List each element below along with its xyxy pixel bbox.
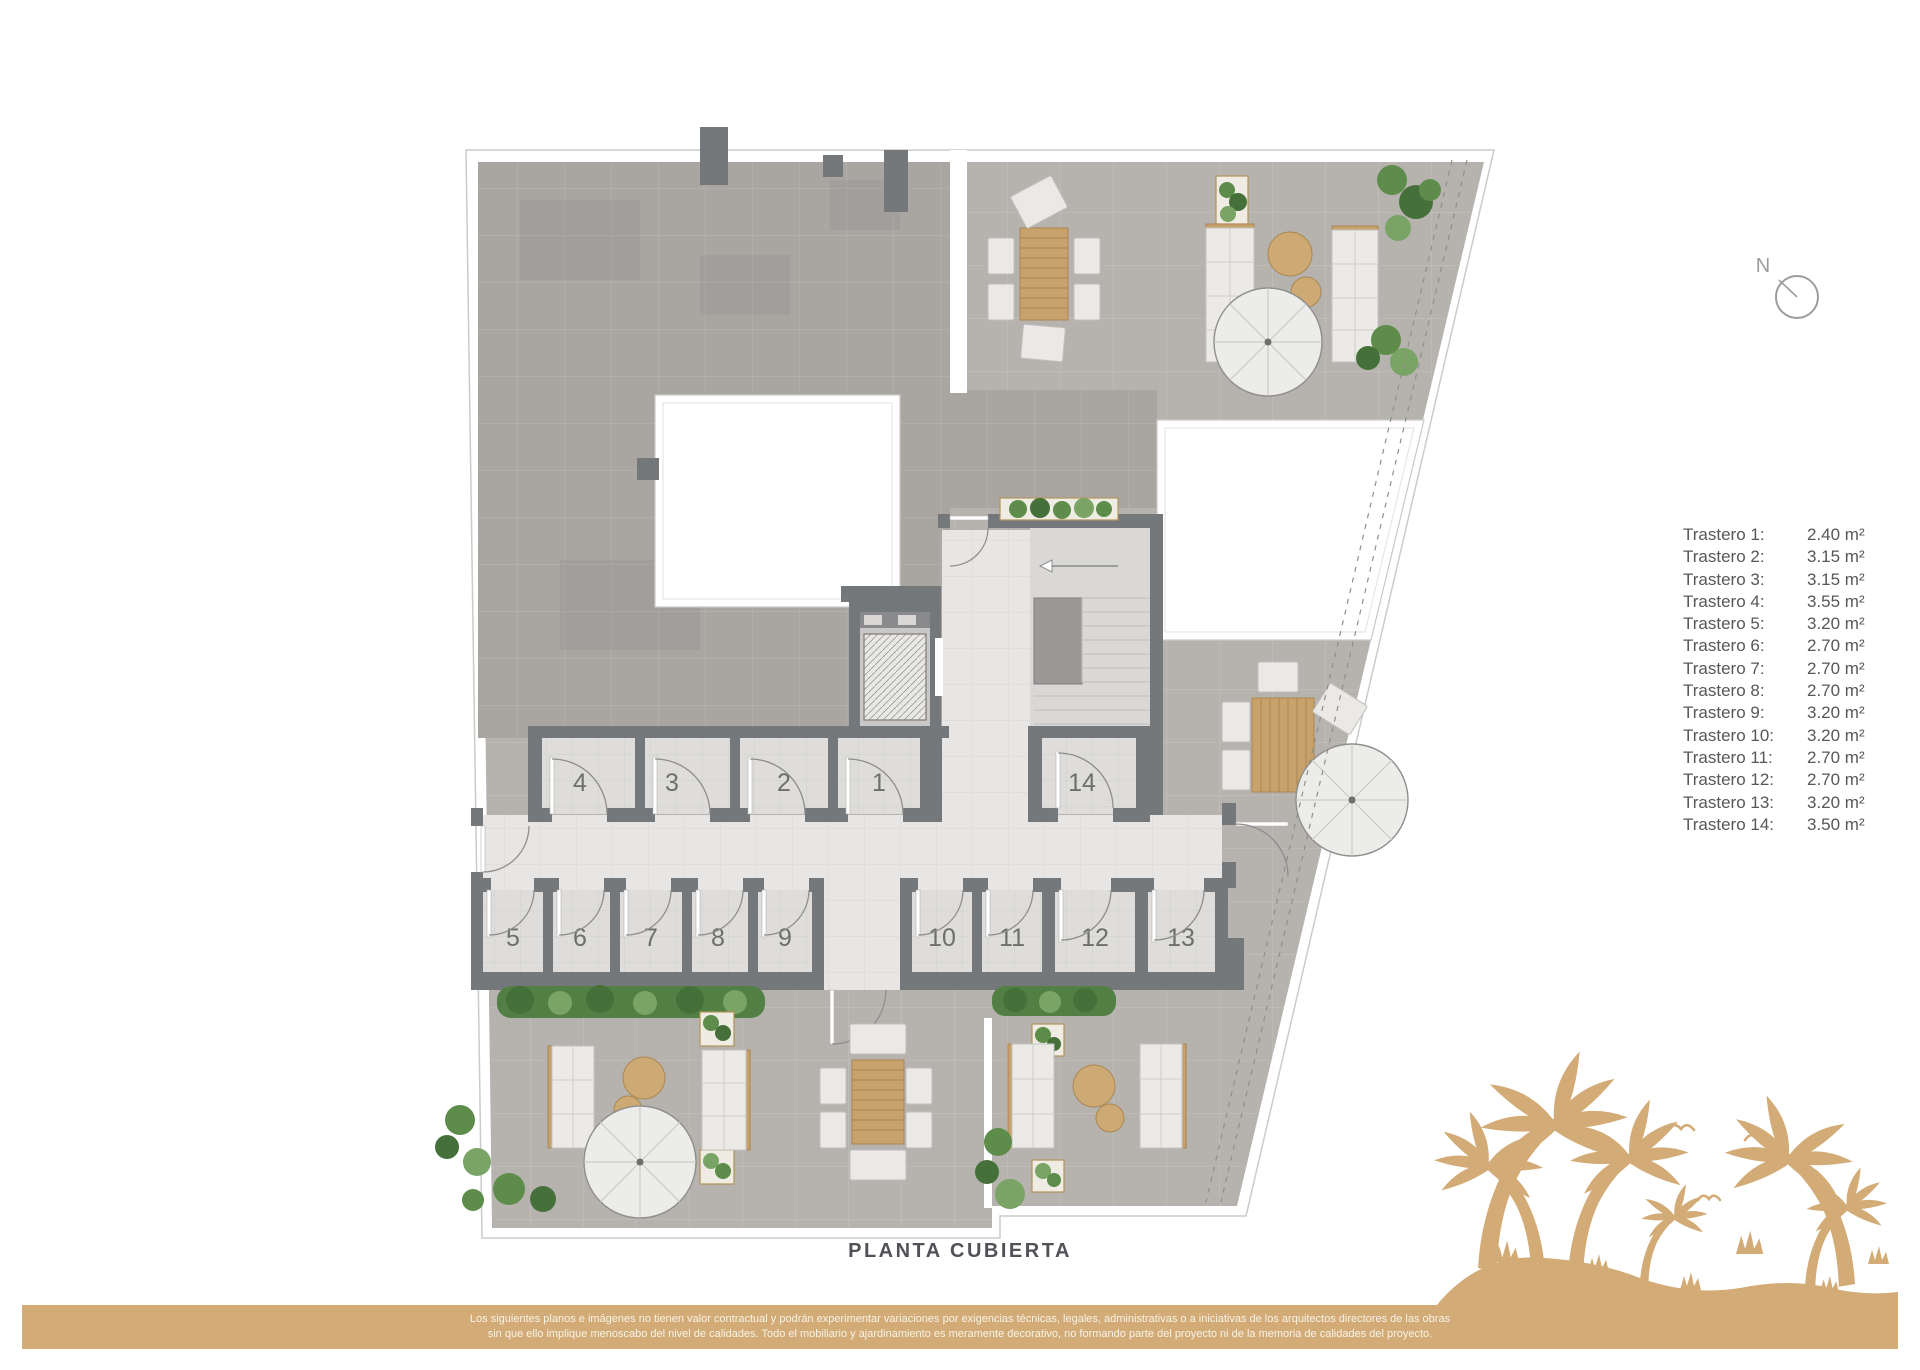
compass: N <box>1756 255 1818 318</box>
legend-row: Trastero 8:2.70 m² <box>1683 680 1865 702</box>
svg-text:6: 6 <box>573 924 587 952</box>
floor-plan: 4 3 2 1 14 5 6 7 8 9 10 11 12 13 <box>0 0 1920 1370</box>
parasol-top-right <box>1214 288 1322 396</box>
room-10: 10 <box>912 890 972 972</box>
courtyard-void <box>637 395 900 607</box>
parasol-bottom-left <box>584 1106 696 1218</box>
legend-row: Trastero 14:3.50 m² <box>1683 814 1865 836</box>
svg-text:13: 13 <box>1167 924 1195 952</box>
legend-row: Trastero 3:3.15 m² <box>1683 569 1865 591</box>
parasol-mid-right <box>1296 744 1408 856</box>
legend-row: Trastero 5:3.20 m² <box>1683 613 1865 635</box>
svg-text:9: 9 <box>778 924 792 952</box>
compass-north-label: N <box>1756 255 1770 277</box>
room-3: 3 <box>645 738 730 814</box>
room-8: 8 <box>692 890 748 972</box>
legend-row: Trastero 11:2.70 m² <box>1683 747 1865 769</box>
storage-legend: Trastero 1:2.40 m² Trastero 2:3.15 m² Tr… <box>1683 524 1865 836</box>
svg-text:3: 3 <box>665 769 679 797</box>
room-11: 11 <box>982 890 1042 972</box>
legend-row: Trastero 13:3.20 m² <box>1683 792 1865 814</box>
room-12: 12 <box>1055 890 1135 972</box>
svg-text:4: 4 <box>573 769 587 797</box>
room-13: 13 <box>1148 890 1215 972</box>
room-5: 5 <box>483 890 543 972</box>
elevator <box>841 586 943 738</box>
legend-row: Trastero 7:2.70 m² <box>1683 658 1865 680</box>
palm-illustration <box>1434 1051 1898 1306</box>
svg-text:1: 1 <box>872 769 886 797</box>
roof-gap-channel <box>950 150 967 393</box>
legend-row: Trastero 1:2.40 m² <box>1683 524 1865 546</box>
legend-row: Trastero 9:3.20 m² <box>1683 702 1865 724</box>
page-title: PLANTA CUBIERTA <box>710 1240 1210 1263</box>
stair-planter <box>1000 498 1118 520</box>
legend-row: Trastero 4:3.55 m² <box>1683 591 1865 613</box>
room-4: 4 <box>542 738 635 814</box>
room-7: 7 <box>620 890 682 972</box>
legend-row: Trastero 10:3.20 m² <box>1683 725 1865 747</box>
staircase <box>1030 528 1150 738</box>
legend-row: Trastero 2:3.15 m² <box>1683 546 1865 568</box>
svg-text:14: 14 <box>1068 769 1096 797</box>
room-2: 2 <box>740 738 828 814</box>
svg-text:12: 12 <box>1081 924 1109 952</box>
room-6: 6 <box>553 890 610 972</box>
legend-row: Trastero 12:2.70 m² <box>1683 769 1865 791</box>
legend-row: Trastero 6:2.70 m² <box>1683 635 1865 657</box>
svg-text:2: 2 <box>777 769 791 797</box>
